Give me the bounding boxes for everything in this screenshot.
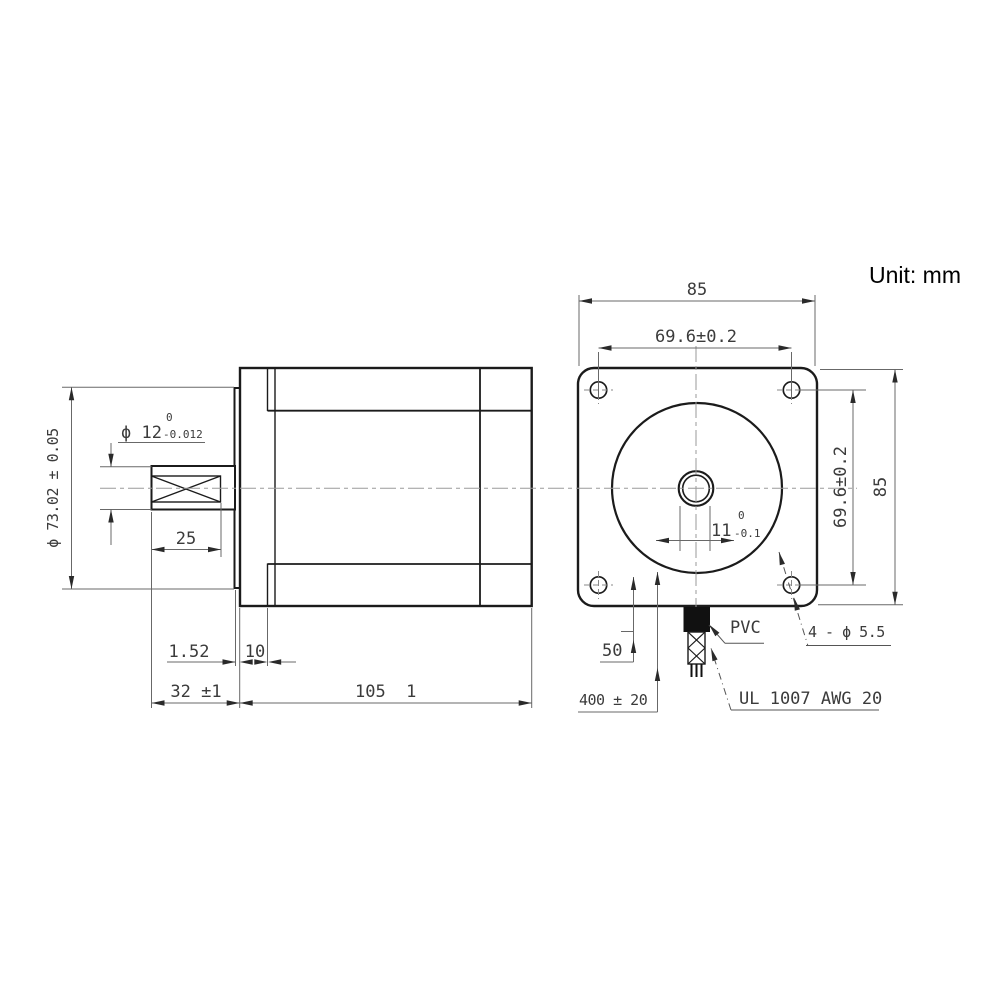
- dim-front-width-label: 85: [687, 280, 707, 300]
- dim-cable-length-label: 400 ± 20: [579, 691, 648, 709]
- dim-lead-free-length-label: 50: [602, 641, 622, 661]
- dim-shaft-diameter-label: ϕ 12: [121, 423, 162, 443]
- callout-wire-spec-label: UL 1007 AWG 20: [739, 689, 882, 709]
- dim-shaft-total-label: 32 ±1: [170, 682, 221, 702]
- dim-hole-spacing-right-label: 69.6±0.2: [831, 446, 851, 528]
- unit-label: Unit: mm: [869, 262, 961, 288]
- motor-body: [240, 368, 532, 606]
- dim-body-length-label: 105 1: [355, 682, 416, 702]
- dim-shaft-diameter-sub: -0.012: [163, 428, 203, 441]
- dim-pilot-depth-label: 1.52: [169, 642, 210, 662]
- dim-front-height-label: 85: [871, 477, 891, 497]
- dim-shaft-flat-sup: 0: [738, 509, 745, 522]
- callout-pvc-label: PVC: [730, 618, 761, 638]
- dim-shaft-diameter-sup: 0: [166, 411, 173, 424]
- dim-flange-diameter-label: ϕ 73.02 ± 0.05: [44, 428, 62, 547]
- drawing-canvas: 85 69.6±0.2 69.6±0.2 85 11 0 -0.1: [0, 0, 1000, 1000]
- dim-shaft-flat-label: 11: [711, 521, 731, 541]
- dim-shaft-flat-sub: -0.1: [734, 527, 761, 540]
- pvc-cable-gland: [684, 607, 711, 632]
- dim-shaft-length-label: 25: [176, 529, 196, 549]
- shaft: [152, 466, 236, 510]
- stepper-motor-dimension-drawing: 85 69.6±0.2 69.6±0.2 85 11 0 -0.1: [0, 0, 1000, 1000]
- dim-hole-spacing-top-label: 69.6±0.2: [655, 327, 737, 347]
- dim-cap-depth-label: 10: [245, 642, 265, 662]
- callout-mount-holes-label: 4 - ϕ 5.5: [808, 623, 885, 641]
